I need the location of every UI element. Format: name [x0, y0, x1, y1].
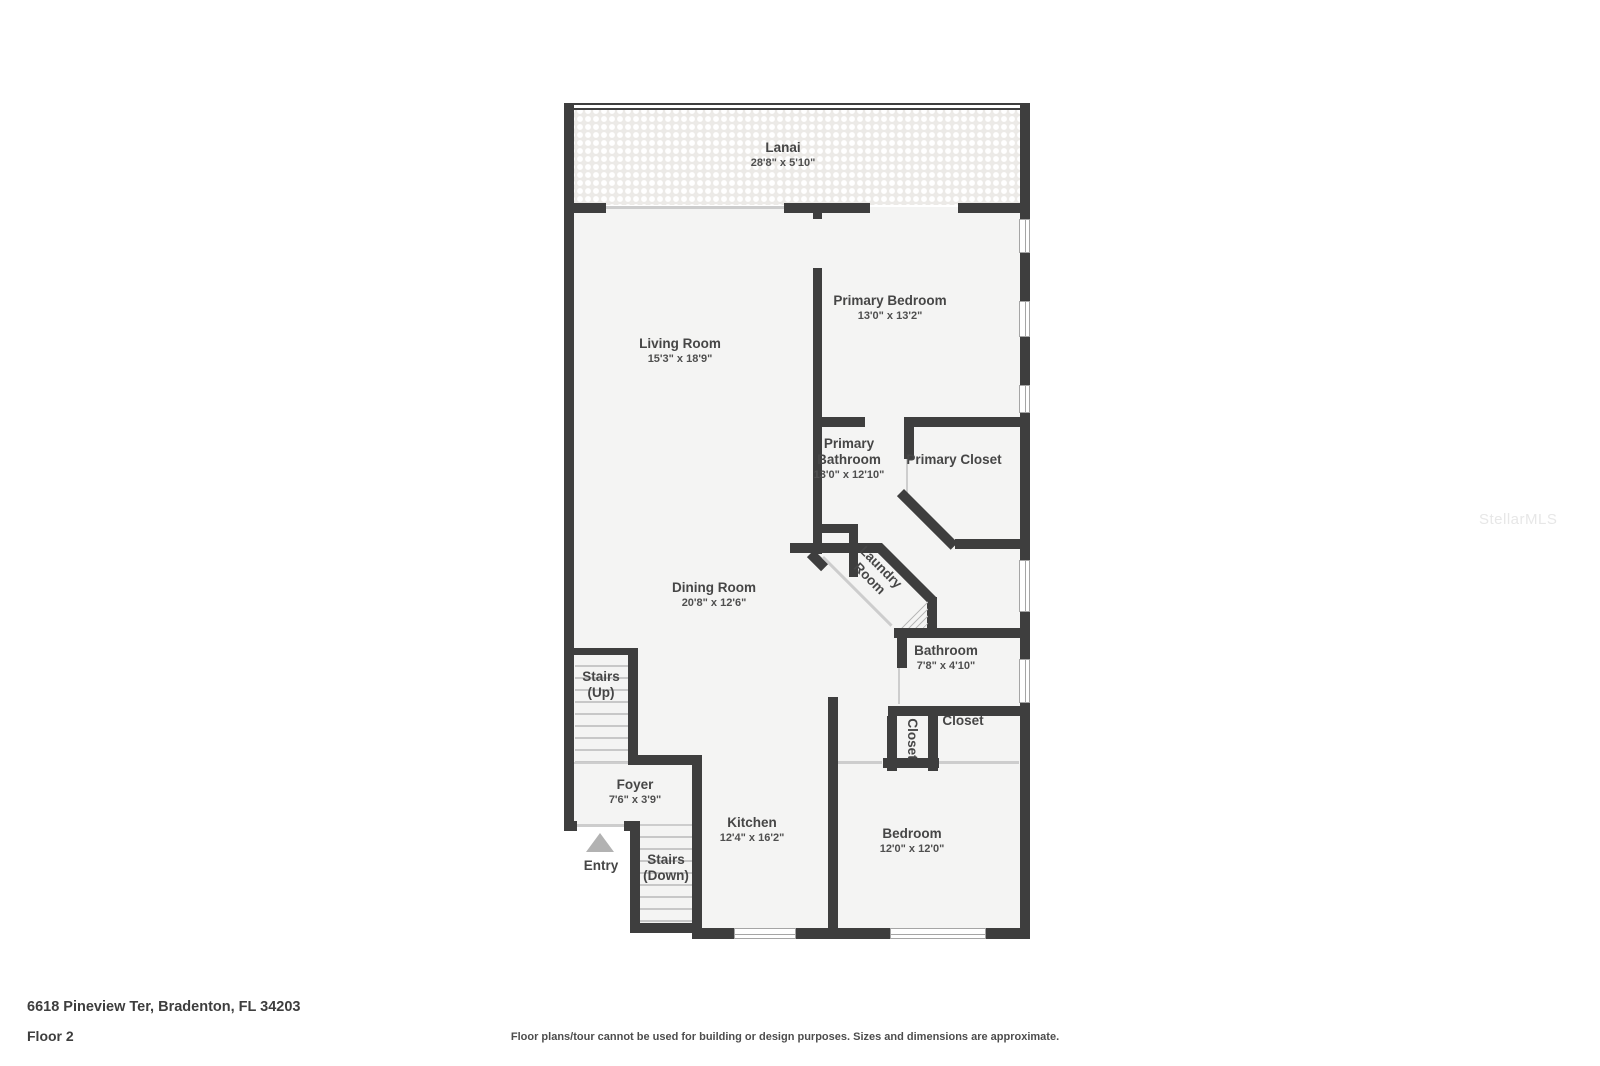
room-name: Stairs (Up) [577, 669, 625, 701]
room-label-closet-hall: Closet [904, 718, 920, 759]
floorplan-page: { "plan": { "rooms": { "lanai": {"name":… [0, 0, 1600, 1066]
room-dimensions: 12'0" x 12'0" [880, 843, 945, 856]
room-name: Primary Bedroom [833, 293, 946, 309]
wall [813, 417, 865, 427]
room-name: Closet [904, 718, 920, 759]
wall [692, 758, 702, 939]
wall [1020, 103, 1030, 211]
wall [784, 203, 870, 213]
room-label-lanai: Lanai 28'8" x 5'10" [751, 140, 816, 170]
room-name: Stairs (Down) [634, 852, 698, 884]
room-label-stairs-down: Stairs (Down) [634, 852, 698, 884]
room-label-dining-room: Dining Room 20'8" x 12'6" [672, 580, 756, 610]
window [1019, 385, 1030, 413]
wall [564, 821, 577, 831]
room-dimensions: 12'4" x 16'2" [720, 832, 785, 845]
window [734, 928, 796, 939]
disclaimer-text: Floor plans/tour cannot be used for buil… [390, 1031, 1180, 1043]
room-label-living-room: Living Room 15'3" x 18'9" [639, 336, 721, 366]
room-dimensions: 13'0" x 12'10" [807, 469, 891, 482]
room-name: Bedroom [880, 826, 945, 842]
room-dimensions: 7'6" x 3'9" [609, 794, 661, 807]
wall [904, 417, 1029, 427]
kitchen-bedroom-area [694, 758, 1023, 936]
window [890, 928, 986, 939]
wall [897, 638, 907, 668]
room-name: Primary Bathroom [807, 436, 891, 468]
door-opening [898, 668, 900, 704]
room-label-entry: Entry [584, 858, 619, 874]
room-label-stairs-up: Stairs (Up) [577, 669, 625, 701]
room-dimensions: 13'0" x 13'2" [833, 310, 946, 323]
room-label-kitchen: Kitchen 12'4" x 16'2" [720, 815, 785, 845]
wall [574, 648, 628, 655]
window [1019, 560, 1030, 612]
floor-transition-line [640, 824, 692, 826]
room-dimensions: 28'8" x 5'10" [751, 157, 816, 170]
room-dimensions: 20'8" x 12'6" [672, 597, 756, 610]
wall [894, 628, 1030, 638]
wall [813, 268, 822, 554]
room-dimensions: 7'8" x 4'10" [914, 660, 978, 673]
main-floor-area [571, 207, 1023, 827]
room-name: Primary Closet [906, 452, 1001, 468]
closet-slider-opening [939, 761, 1019, 764]
room-label-primary-bathroom: Primary Bathroom 13'0" x 12'10" [807, 436, 891, 482]
room-name: Living Room [639, 336, 721, 352]
room-name: Kitchen [720, 815, 785, 831]
floor-number: Floor 2 [27, 1028, 74, 1044]
room-name: Entry [584, 858, 619, 874]
room-name: Lanai [751, 140, 816, 156]
room-dimensions: 15'3" x 18'9" [639, 353, 721, 366]
room-label-foyer: Foyer 7'6" x 3'9" [609, 777, 661, 807]
room-label-primary-bedroom: Primary Bedroom 13'0" x 13'2" [833, 293, 946, 323]
room-name: Foyer [609, 777, 661, 793]
room-name: Closet [942, 713, 983, 729]
window [1019, 659, 1030, 703]
room-label-primary-closet: Primary Closet [906, 452, 1001, 468]
sliding-door-opening [606, 206, 784, 209]
wall [828, 697, 838, 939]
room-label-bedroom: Bedroom 12'0" x 12'0" [880, 826, 945, 856]
room-name: Bathroom [914, 643, 978, 659]
floor-transition-line [574, 762, 628, 764]
property-address: 6618 Pineview Ter, Bradenton, FL 34203 [27, 999, 300, 1015]
wall [955, 539, 1029, 549]
wall [628, 755, 702, 765]
wall [628, 648, 638, 765]
door-opening [838, 761, 882, 764]
wall [564, 203, 574, 828]
wall [813, 210, 822, 219]
lanai-screen-wall [566, 103, 1028, 110]
window [1019, 301, 1030, 337]
floor-plan: Lanai 28'8" x 5'10" Living Room 15'3" x … [564, 103, 1030, 943]
wall [564, 103, 574, 211]
room-label-bathroom: Bathroom 7'8" x 4'10" [914, 643, 978, 673]
room-label-closet-bedroom: Closet [942, 713, 983, 729]
stellar-mls-watermark: StellarMLS [1479, 511, 1557, 528]
entry-door-opening [577, 824, 624, 827]
room-name: Dining Room [672, 580, 756, 596]
window [1019, 219, 1030, 253]
wall [816, 524, 858, 533]
entry-arrow-icon [586, 833, 614, 852]
